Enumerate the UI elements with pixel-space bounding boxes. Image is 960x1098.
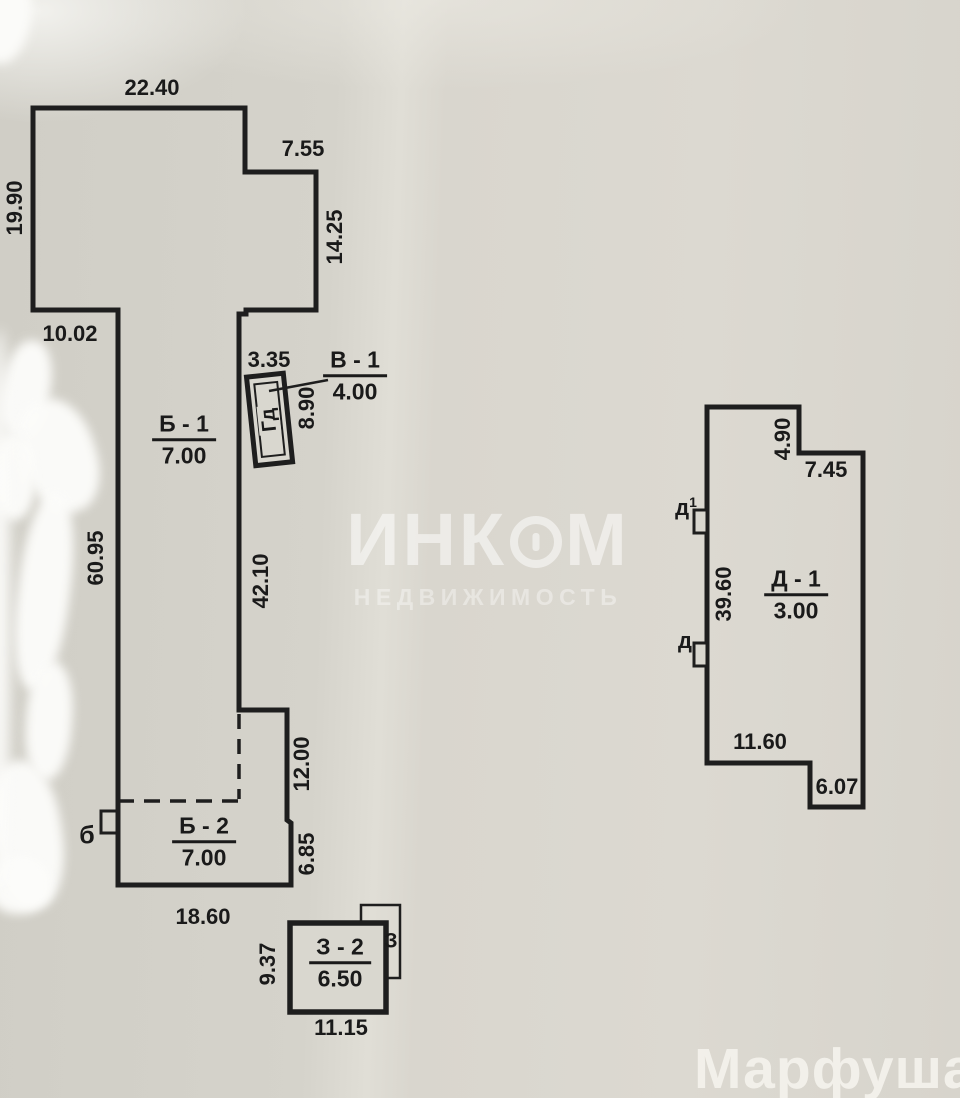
label-d-entry2: д (678, 630, 692, 652)
dim-b-lower-right-step-height: 6.85 (296, 833, 318, 876)
building-b-outline (33, 108, 316, 885)
dim-d-left-height: 39.60 (713, 566, 735, 621)
watermark-tagline: НЕДВИЖИМОСТЬ (338, 584, 638, 611)
dim-d-top-width: 7.45 (805, 459, 848, 481)
room-label-d1: Д - 1 3.00 (764, 566, 828, 624)
porch-b-outline (101, 811, 117, 833)
callout-label-v1: В - 1 4.00 (323, 347, 387, 405)
label-z-back: З (384, 931, 397, 952)
room-b2-value: 7.00 (172, 843, 236, 871)
room-label-z2: З - 2 6.50 (309, 934, 371, 992)
label-d-entry1-sup: 1 (689, 494, 697, 510)
dim-b-ledge-width: 10.02 (42, 323, 97, 345)
room-z2-value: 6.50 (309, 964, 371, 992)
watermark-brand-suffix: М (565, 498, 630, 581)
room-label-b2: Б - 2 7.00 (172, 813, 236, 871)
watermark-brand-prefix: ИНК (346, 498, 507, 581)
dim-b-lower-right-height: 12.00 (291, 736, 313, 791)
dim-d-bottom-step-width: 6.07 (816, 776, 859, 798)
dim-b-notch-width: 7.55 (282, 138, 325, 160)
scanned-plan-photo: 22.40 7.55 19.90 14.25 10.02 60.95 42.10… (0, 0, 960, 1098)
dim-g-width: 3.35 (248, 349, 291, 371)
inkom-logo-o-icon (510, 516, 562, 568)
inkom-watermark: ИНКМ НЕДВИЖИМОСТЬ (338, 503, 638, 611)
room-label-b1: Б - 1 7.00 (152, 411, 216, 469)
room-b2-name: Б - 2 (172, 813, 236, 843)
callout-v1-value: 4.00 (323, 377, 387, 405)
room-b1-name: Б - 1 (152, 411, 216, 441)
dim-z-left-height: 9.37 (257, 943, 279, 986)
dim-z-bottom-width: 11.15 (314, 1017, 368, 1039)
dim-b-right-height: 14.25 (324, 209, 346, 264)
callout-v1-name: В - 1 (323, 347, 387, 377)
inkom-logo-figure-icon (533, 533, 540, 551)
dim-d-bottom-width: 11.60 (733, 731, 787, 753)
label-structure-g: Гд (257, 404, 282, 435)
dim-b-stem-left-height: 60.95 (85, 530, 107, 585)
dim-b-stem-right-height: 42.10 (250, 553, 272, 608)
room-d1-value: 3.00 (764, 596, 828, 624)
dim-d-step-height: 4.90 (772, 418, 794, 461)
dim-g-side-height: 8.90 (296, 387, 318, 430)
room-d1-name: Д - 1 (764, 566, 828, 596)
label-d-entry1: д1 (675, 495, 697, 519)
room-b1-value: 7.00 (152, 441, 216, 469)
dim-b-left-height: 19.90 (4, 180, 26, 235)
dim-b-top-width: 22.40 (124, 77, 179, 99)
dim-b-bottom-width: 18.60 (175, 906, 230, 928)
watermark-brand: ИНКМ (338, 503, 638, 577)
entry-d2-outline (694, 643, 707, 666)
signature-text: Марфуша (694, 1036, 960, 1098)
label-d-entry1-base: д (675, 495, 689, 520)
label-b-porch: б (79, 824, 94, 849)
room-z2-name: З - 2 (309, 934, 371, 964)
